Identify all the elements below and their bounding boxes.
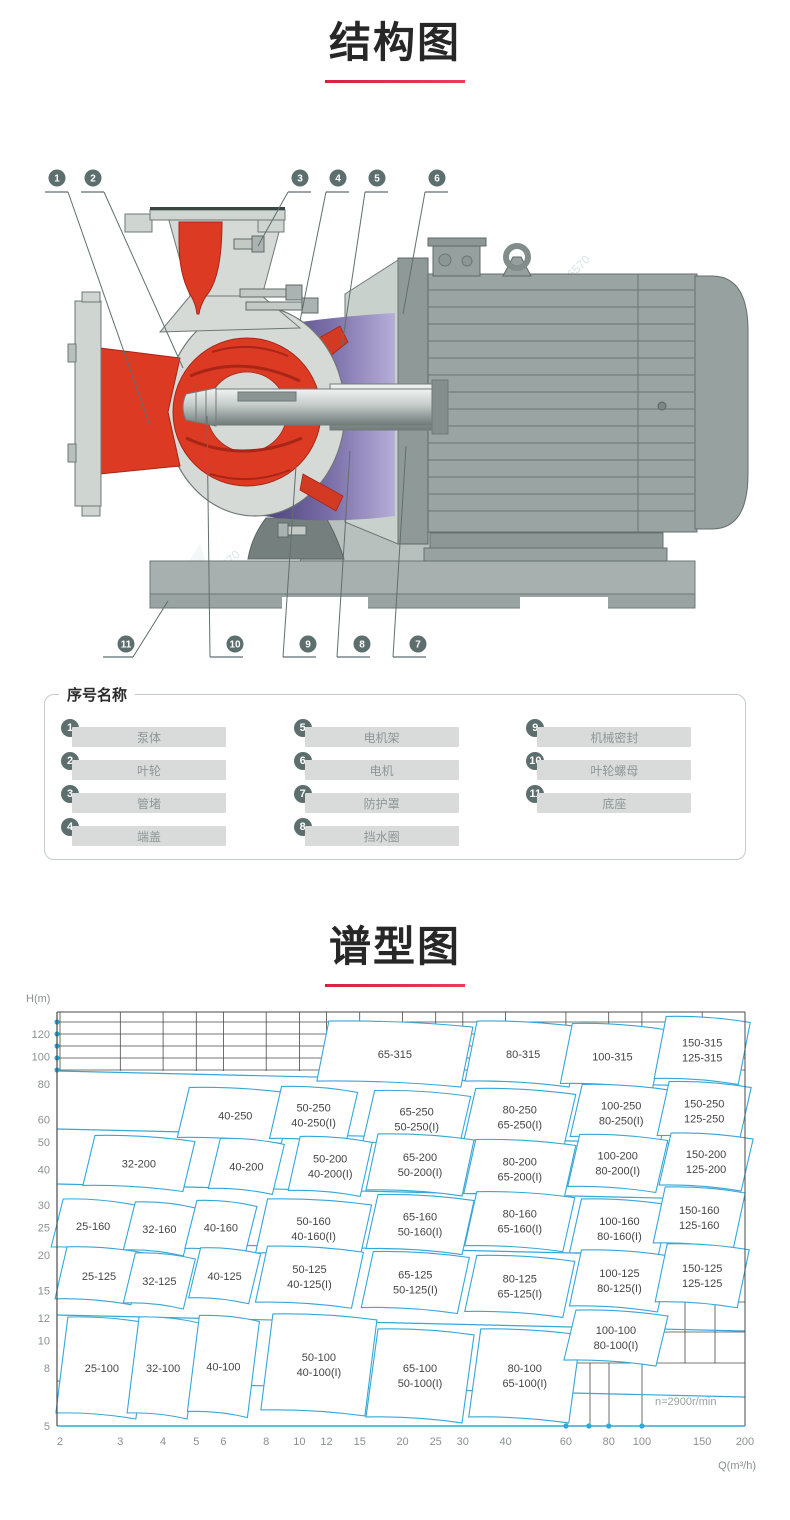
pump-structure-diagram: 850-6570 850-6570 850-6570 bbox=[0, 146, 790, 666]
base-plate bbox=[150, 561, 695, 609]
pump-model-region bbox=[568, 1134, 668, 1192]
x-tick-label: 200 bbox=[736, 1436, 754, 1448]
pump-model-label: 40-100 bbox=[206, 1361, 240, 1373]
pump-model-label: 32-125 bbox=[142, 1276, 176, 1288]
pump-model-label: 50-100(I) bbox=[398, 1378, 443, 1390]
pump-model-label: 40-160 bbox=[204, 1222, 238, 1234]
y-tick-label: 80 bbox=[38, 1079, 50, 1091]
pump-model-label: 80-250 bbox=[503, 1104, 537, 1116]
pump-model-label: 32-100 bbox=[146, 1363, 180, 1375]
x-tick-label: 8 bbox=[263, 1436, 269, 1448]
x-tick-label: 150 bbox=[693, 1436, 711, 1448]
pump-model-label: 40-125(I) bbox=[287, 1279, 332, 1291]
part-label: 底座 bbox=[537, 793, 691, 813]
svg-text:2: 2 bbox=[90, 174, 96, 185]
pump-model-label: 40-250 bbox=[218, 1110, 252, 1122]
pump-model-label: 80-100 bbox=[508, 1363, 542, 1375]
y-tick-label: 60 bbox=[38, 1114, 50, 1126]
svg-text:8: 8 bbox=[359, 640, 365, 651]
svg-text:11: 11 bbox=[121, 640, 132, 651]
y-tick-label: 10 bbox=[38, 1335, 50, 1347]
y-tick-label: 12 bbox=[38, 1313, 50, 1325]
callout-badge: 5 bbox=[369, 170, 386, 187]
pump-model-label: 65-100 bbox=[403, 1363, 437, 1375]
pump-model-label: 40-125 bbox=[208, 1271, 242, 1283]
pump-model-label: 80-200 bbox=[503, 1157, 537, 1169]
pump-model-label: 80-125 bbox=[503, 1273, 537, 1285]
pump-model-label: 80-160(I) bbox=[597, 1231, 642, 1243]
spectrum-section-header: 谱型图 bbox=[0, 904, 790, 987]
x-tick-label: 100 bbox=[633, 1436, 651, 1448]
x-tick-label: 3 bbox=[117, 1436, 123, 1448]
pump-model-label: 50-250 bbox=[296, 1102, 330, 1114]
pump-model-label: 100-250 bbox=[601, 1100, 641, 1112]
pump-model-region bbox=[255, 1246, 363, 1308]
callout-badge: 3 bbox=[292, 170, 309, 187]
title-underline bbox=[325, 984, 465, 987]
pump-model-label: 150-160 bbox=[679, 1205, 719, 1217]
part-item: 7防护罩 bbox=[294, 785, 497, 818]
callout-badge: 6 bbox=[429, 170, 446, 187]
pump-model-label: 65-125(I) bbox=[497, 1288, 542, 1300]
pump-model-region bbox=[366, 1194, 474, 1254]
pump-model-region bbox=[366, 1329, 474, 1423]
y-tick-label: 5 bbox=[44, 1421, 50, 1433]
pump-model-label: 25-160 bbox=[76, 1221, 110, 1233]
pump-model-region bbox=[655, 1244, 749, 1308]
part-item: 11底座 bbox=[526, 785, 729, 818]
svg-text:9: 9 bbox=[305, 640, 311, 651]
pump-model-region bbox=[564, 1310, 668, 1366]
parts-legend-title: 序号名称 bbox=[59, 684, 135, 705]
speed-note: n=2900r/min bbox=[655, 1396, 716, 1408]
pump-model-label: 25-125 bbox=[82, 1271, 116, 1283]
part-label: 电机 bbox=[305, 760, 459, 780]
pump-model-label: 65-160(I) bbox=[497, 1224, 542, 1236]
y-tick-label: 100 bbox=[32, 1051, 50, 1063]
pump-model-region bbox=[465, 1255, 575, 1317]
part-label: 泵体 bbox=[72, 727, 226, 747]
part-label: 端盖 bbox=[72, 826, 226, 846]
x-tick-label: 10 bbox=[293, 1436, 305, 1448]
parts-grid: 1泵体2叶轮3管堵4端盖5电机架6电机7防护罩8挡水圈9机械密封10叶轮螺母11… bbox=[61, 719, 729, 851]
callout-badge: 11 bbox=[118, 636, 135, 653]
part-label: 叶轮 bbox=[72, 760, 226, 780]
pump-model-region bbox=[653, 1187, 745, 1249]
lifting-eye bbox=[503, 246, 531, 276]
pump-model-label: 65-200(I) bbox=[497, 1172, 542, 1184]
svg-text:7: 7 bbox=[415, 640, 421, 651]
y-tick-label: 40 bbox=[38, 1165, 50, 1177]
callout-badge: 7 bbox=[410, 636, 427, 653]
pump-model-label: 150-200 bbox=[686, 1149, 726, 1161]
callout-badge: 9 bbox=[300, 636, 317, 653]
pump-model-label: 125-250 bbox=[684, 1114, 724, 1126]
pump-model-label: 65-250(I) bbox=[497, 1119, 542, 1131]
motor-feet bbox=[424, 533, 667, 561]
pump-model-region bbox=[366, 1134, 474, 1196]
svg-text:5: 5 bbox=[374, 174, 380, 185]
svg-text:1: 1 bbox=[54, 174, 60, 185]
model-regions: 65-31580-315100-315150-315125-31540-2505… bbox=[51, 1016, 753, 1423]
x-tick-label: 12 bbox=[320, 1436, 332, 1448]
pump-spectrum-chart: 65-31580-315100-315150-315125-31540-2505… bbox=[0, 989, 790, 1489]
y-tick-label: 20 bbox=[38, 1250, 50, 1262]
pump-model-label: 40-100(I) bbox=[297, 1367, 342, 1379]
pump-model-label: 40-160(I) bbox=[291, 1231, 336, 1243]
x-tick-label: 4 bbox=[160, 1436, 166, 1448]
pump-model-label: 32-160 bbox=[142, 1224, 176, 1236]
pump-model-region bbox=[464, 1139, 576, 1199]
volute-support-foot bbox=[248, 518, 344, 559]
part-item: 9机械密封 bbox=[526, 719, 729, 752]
x-tick-label: 30 bbox=[457, 1436, 469, 1448]
x-tick-label: 60 bbox=[560, 1436, 572, 1448]
pump-model-label: 150-315 bbox=[682, 1037, 722, 1049]
part-item: 6电机 bbox=[294, 752, 497, 785]
pump-model-label: 125-125 bbox=[682, 1278, 722, 1290]
pump-model-label: 100-160 bbox=[599, 1216, 639, 1228]
part-label: 叶轮螺母 bbox=[537, 760, 691, 780]
y-tick-label: 25 bbox=[38, 1222, 50, 1234]
pump-model-region bbox=[288, 1136, 372, 1196]
pump-model-label: 32-200 bbox=[122, 1158, 156, 1170]
suction-flange bbox=[68, 292, 101, 516]
pump-model-label: 50-160 bbox=[296, 1216, 330, 1228]
pump-model-label: 150-250 bbox=[684, 1099, 724, 1111]
x-tick-label: 2 bbox=[57, 1436, 63, 1448]
pump-model-label: 100-315 bbox=[592, 1051, 632, 1063]
part-item: 2叶轮 bbox=[61, 752, 264, 785]
part-item: 10叶轮螺母 bbox=[526, 752, 729, 785]
motor-body bbox=[425, 274, 697, 532]
y-tick-label: 50 bbox=[38, 1137, 50, 1149]
pump-model-region bbox=[570, 1084, 672, 1142]
pump-model-label: 100-125 bbox=[599, 1268, 639, 1280]
pump-model-label: 50-200 bbox=[313, 1153, 347, 1165]
terminal-box bbox=[428, 238, 486, 276]
pump-model-label: 40-200(I) bbox=[308, 1168, 353, 1180]
pump-model-region bbox=[465, 1192, 575, 1252]
motor-end-cap bbox=[695, 276, 748, 529]
part-label: 挡水圈 bbox=[305, 826, 459, 846]
pump-model-label: 100-200 bbox=[598, 1150, 638, 1162]
svg-text:3: 3 bbox=[297, 174, 303, 185]
pump-model-label: 50-200(I) bbox=[398, 1167, 443, 1179]
structure-section-header: 结构图 bbox=[0, 0, 790, 83]
structure-title: 结构图 bbox=[0, 18, 790, 68]
pump-model-region bbox=[270, 1086, 358, 1144]
pump-model-label: 65-200 bbox=[403, 1152, 437, 1164]
x-tick-label: 20 bbox=[396, 1436, 408, 1448]
part-label: 防护罩 bbox=[305, 793, 459, 813]
pump-model-label: 65-100(I) bbox=[502, 1378, 547, 1390]
pump-model-label: 150-125 bbox=[682, 1263, 722, 1275]
pump-model-label: 65-125 bbox=[398, 1270, 432, 1282]
pump-model-label: 50-125 bbox=[292, 1264, 326, 1276]
x-axis-label: Q(m³/h) bbox=[718, 1460, 756, 1472]
pump-model-label: 80-200(I) bbox=[595, 1165, 640, 1177]
discharge-neck bbox=[160, 296, 300, 332]
pump-model-label: 50-160(I) bbox=[398, 1227, 443, 1239]
x-tick-label: 40 bbox=[499, 1436, 511, 1448]
part-item: 4端盖 bbox=[61, 818, 264, 851]
x-tick-label: 6 bbox=[220, 1436, 226, 1448]
pump-model-label: 80-125(I) bbox=[597, 1283, 642, 1295]
pump-model-label: 80-160 bbox=[503, 1209, 537, 1221]
pump-model-label: 65-315 bbox=[378, 1049, 412, 1061]
pump-model-label: 65-250 bbox=[400, 1106, 434, 1118]
part-item: 8挡水圈 bbox=[294, 818, 497, 851]
part-item: 5电机架 bbox=[294, 719, 497, 752]
callout-badge: 8 bbox=[354, 636, 371, 653]
pump-model-label: 50-100 bbox=[302, 1352, 336, 1364]
svg-text:10: 10 bbox=[229, 640, 241, 651]
y-axis-label: H(m) bbox=[26, 993, 50, 1005]
pump-model-label: 80-250(I) bbox=[599, 1115, 644, 1127]
callout-badge: 10 bbox=[227, 636, 244, 653]
svg-text:6: 6 bbox=[434, 174, 440, 185]
pump-model-region bbox=[361, 1251, 469, 1313]
y-tick-label: 30 bbox=[38, 1200, 50, 1212]
pump-model-label: 25-100 bbox=[85, 1363, 119, 1375]
pump-model-region bbox=[654, 1016, 750, 1084]
pump-model-label: 40-200 bbox=[229, 1161, 263, 1173]
part-label: 机械密封 bbox=[537, 727, 691, 747]
part-label: 管堵 bbox=[72, 793, 226, 813]
pump-model-label: 50-250(I) bbox=[394, 1121, 439, 1133]
y-tick-label: 120 bbox=[32, 1029, 50, 1041]
part-label: 电机架 bbox=[305, 727, 459, 747]
callout-badge: 1 bbox=[49, 170, 66, 187]
motor-screw bbox=[658, 402, 666, 410]
title-underline bbox=[325, 80, 465, 83]
pump-model-region bbox=[261, 1314, 377, 1416]
callout-badge: 4 bbox=[330, 170, 347, 187]
parts-legend-panel: 序号名称 1泵体2叶轮3管堵4端盖5电机架6电机7防护罩8挡水圈9机械密封10叶… bbox=[44, 694, 746, 860]
pump-model-region bbox=[464, 1088, 576, 1146]
pump-model-label: 125-160 bbox=[679, 1220, 719, 1232]
pump-model-label: 50-125(I) bbox=[393, 1285, 438, 1297]
callout-badge: 2 bbox=[85, 170, 102, 187]
pump-model-label: 65-160 bbox=[403, 1212, 437, 1224]
spectrum-title: 谱型图 bbox=[0, 922, 790, 972]
pump-model-label: 125-315 bbox=[682, 1052, 722, 1064]
pump-model-label: 80-100(I) bbox=[594, 1340, 639, 1352]
x-tick-label: 80 bbox=[603, 1436, 615, 1448]
pump-model-label: 100-100 bbox=[596, 1325, 636, 1337]
pump-model-label: 125-200 bbox=[686, 1164, 726, 1176]
part-item: 1泵体 bbox=[61, 719, 264, 752]
y-tick-label: 15 bbox=[38, 1285, 50, 1297]
x-tick-label: 15 bbox=[354, 1436, 366, 1448]
svg-text:4: 4 bbox=[335, 174, 341, 185]
pump-model-label: 40-250(I) bbox=[291, 1117, 336, 1129]
pump-model-region bbox=[659, 1133, 753, 1191]
part-item: 3管堵 bbox=[61, 785, 264, 818]
y-tick-label: 8 bbox=[44, 1363, 50, 1375]
pump-model-label: 80-315 bbox=[506, 1049, 540, 1061]
pump-model-region bbox=[569, 1250, 669, 1312]
x-tick-label: 25 bbox=[430, 1436, 442, 1448]
pump-model-region bbox=[469, 1329, 581, 1423]
x-tick-label: 5 bbox=[193, 1436, 199, 1448]
